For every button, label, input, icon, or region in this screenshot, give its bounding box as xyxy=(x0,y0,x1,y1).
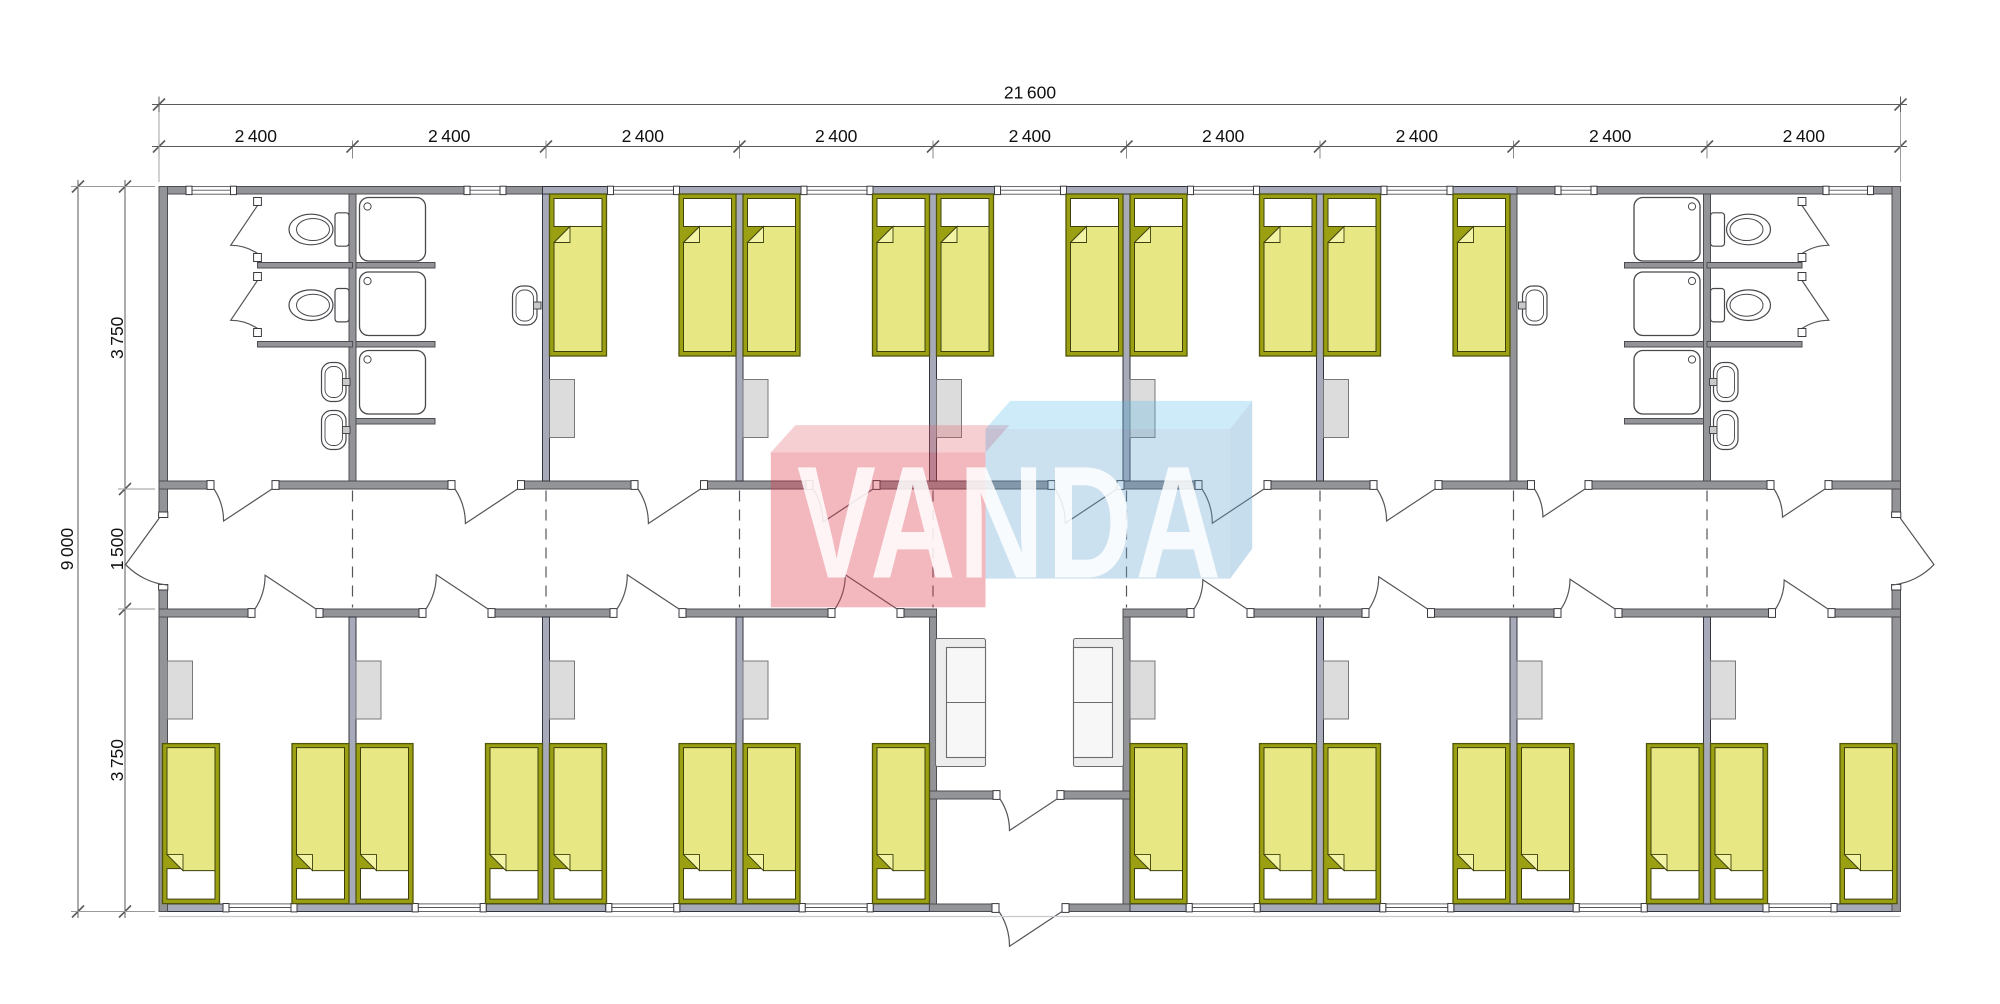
svg-text:2 400: 2 400 xyxy=(1009,126,1052,146)
svg-text:2 400: 2 400 xyxy=(1783,126,1826,146)
svg-text:2 400: 2 400 xyxy=(1202,126,1245,146)
svg-text:2 400: 2 400 xyxy=(235,126,278,146)
svg-text:21 600: 21 600 xyxy=(1004,83,1056,103)
svg-text:9 000: 9 000 xyxy=(57,528,77,571)
svg-text:1 500: 1 500 xyxy=(107,528,127,571)
svg-text:2 400: 2 400 xyxy=(1589,126,1632,146)
svg-text:3 750: 3 750 xyxy=(107,316,127,359)
svg-text:2 400: 2 400 xyxy=(428,126,471,146)
svg-text:3 750: 3 750 xyxy=(107,739,127,782)
svg-text:2 400: 2 400 xyxy=(815,126,858,146)
svg-text:2 400: 2 400 xyxy=(1396,126,1439,146)
svg-text:2 400: 2 400 xyxy=(622,126,665,146)
svg-text:VANDA: VANDA xyxy=(797,433,1224,611)
